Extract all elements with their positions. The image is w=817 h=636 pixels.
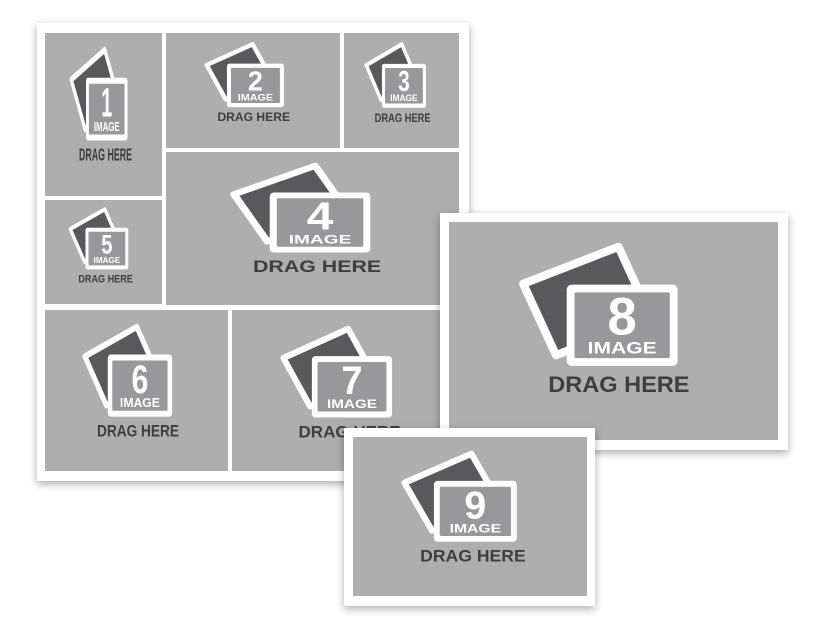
svg-text:IMAGE: IMAGE [587, 340, 656, 358]
svg-text:IMAGE: IMAGE [390, 93, 417, 103]
svg-text:DRAG HERE: DRAG HERE [79, 146, 132, 165]
svg-text:DRAG HERE: DRAG HERE [421, 546, 527, 565]
svg-text:IMAGE: IMAGE [238, 93, 274, 103]
svg-text:IMAGE: IMAGE [94, 121, 120, 135]
svg-text:DRAG HERE: DRAG HERE [97, 422, 179, 441]
svg-text:4: 4 [307, 196, 334, 239]
svg-text:IMAGE: IMAGE [120, 397, 160, 411]
svg-text:2: 2 [248, 65, 263, 97]
svg-text:IMAGE: IMAGE [93, 256, 120, 266]
svg-text:IMAGE: IMAGE [327, 397, 377, 411]
svg-text:DRAG HERE: DRAG HERE [548, 372, 689, 397]
svg-text:IMAGE: IMAGE [289, 233, 352, 246]
svg-text:9: 9 [465, 483, 487, 527]
svg-text:IMAGE: IMAGE [450, 521, 502, 535]
svg-text:8: 8 [607, 288, 636, 347]
svg-text:DRAG HERE: DRAG HERE [78, 274, 133, 286]
svg-text:DRAG HERE: DRAG HERE [253, 257, 381, 276]
svg-text:1: 1 [102, 80, 113, 126]
svg-text:DRAG HERE: DRAG HERE [218, 111, 291, 124]
svg-text:DRAG HERE: DRAG HERE [374, 112, 430, 126]
svg-text:6: 6 [131, 357, 148, 402]
